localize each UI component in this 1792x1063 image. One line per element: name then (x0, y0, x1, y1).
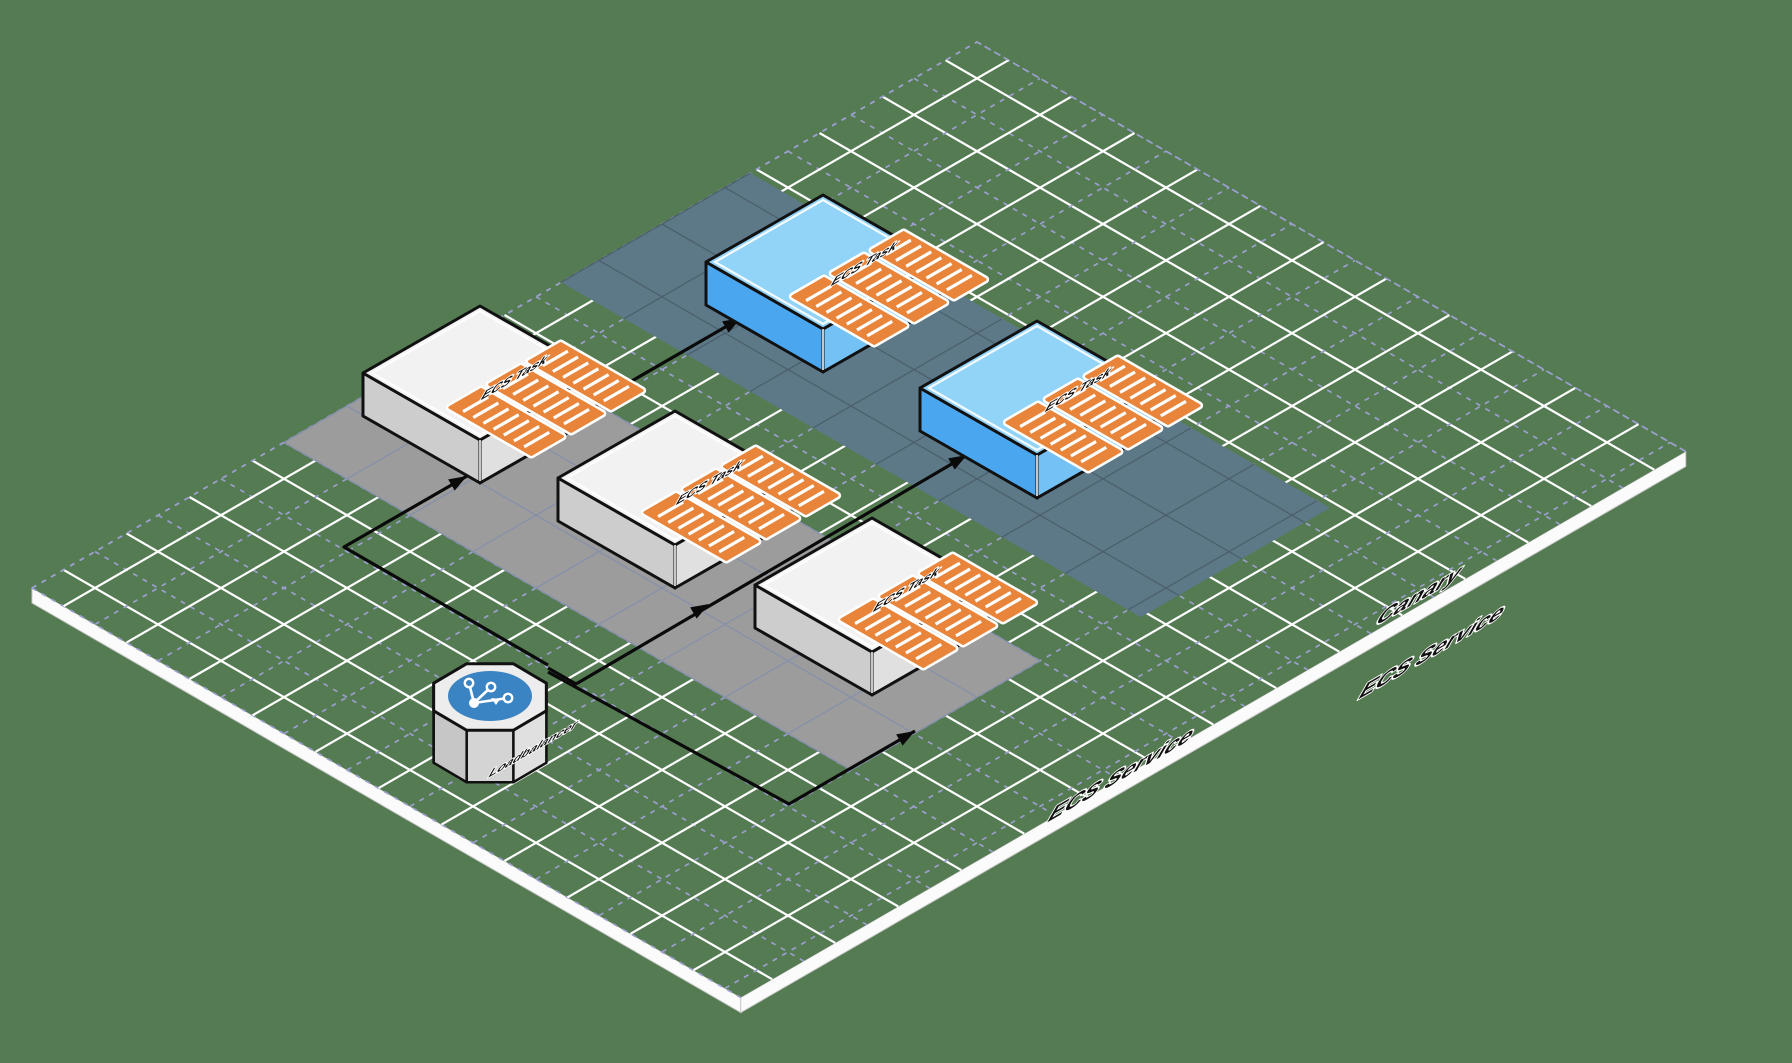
load-balancer-badge (448, 671, 532, 721)
node-load-balancer (434, 664, 547, 783)
diagram-svg: ECS Task ECS Task ECS Task ECS Task ECS … (0, 0, 1792, 1063)
isometric-diagram-canvas: ECS Task ECS Task ECS Task ECS Task ECS … (0, 0, 1792, 1063)
